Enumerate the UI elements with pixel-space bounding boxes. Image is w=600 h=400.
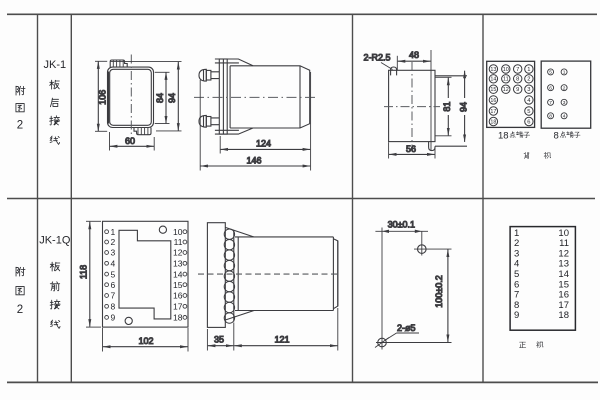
svg-text:1: 1 — [563, 70, 566, 76]
svg-text:35: 35 — [214, 334, 224, 344]
svg-text:11: 11 — [174, 237, 183, 247]
svg-text:9: 9 — [111, 313, 116, 323]
svg-text:15: 15 — [490, 87, 496, 93]
svg-text:2: 2 — [527, 77, 530, 83]
svg-text:9: 9 — [514, 310, 519, 321]
svg-text:48: 48 — [409, 50, 419, 60]
svg-text:11: 11 — [503, 77, 509, 83]
svg-text:14: 14 — [490, 77, 496, 83]
svg-text:56: 56 — [406, 144, 416, 154]
svg-text:2: 2 — [563, 85, 566, 91]
svg-text:94: 94 — [458, 102, 468, 112]
svg-text:2-R2.5: 2-R2.5 — [364, 53, 391, 63]
svg-text:1: 1 — [111, 227, 116, 237]
svg-text:3: 3 — [563, 100, 566, 106]
svg-text:JK-1Q: JK-1Q — [39, 235, 71, 247]
svg-text:121: 121 — [274, 334, 289, 344]
svg-text:12: 12 — [173, 248, 183, 258]
svg-text:124: 124 — [256, 139, 271, 149]
svg-text:146: 146 — [246, 156, 261, 166]
svg-text:7: 7 — [549, 100, 552, 106]
svg-text:JK-1: JK-1 — [43, 59, 66, 71]
svg-text:6: 6 — [549, 85, 552, 91]
svg-text:4: 4 — [111, 259, 116, 269]
svg-text:15: 15 — [173, 280, 183, 290]
svg-text:10: 10 — [173, 227, 183, 237]
svg-text:94: 94 — [167, 93, 177, 103]
svg-text:18: 18 — [558, 310, 569, 321]
svg-text:2: 2 — [17, 304, 23, 316]
svg-text:18: 18 — [498, 130, 509, 141]
svg-text:5: 5 — [527, 109, 530, 115]
svg-text:8: 8 — [554, 130, 559, 141]
svg-text:5: 5 — [549, 70, 552, 76]
svg-text:8: 8 — [516, 77, 519, 83]
svg-text:8: 8 — [549, 114, 552, 120]
svg-text:84: 84 — [155, 93, 165, 103]
svg-text:7: 7 — [516, 67, 519, 73]
svg-text:5: 5 — [111, 269, 116, 279]
svg-text:106: 106 — [97, 90, 107, 105]
svg-text:6: 6 — [111, 280, 116, 290]
svg-text:17: 17 — [173, 302, 183, 312]
svg-text:13: 13 — [173, 259, 183, 269]
svg-text:118: 118 — [78, 265, 88, 279]
svg-text:18: 18 — [173, 313, 183, 323]
svg-text:9: 9 — [516, 87, 519, 93]
svg-text:16: 16 — [173, 291, 183, 301]
svg-text:3: 3 — [111, 248, 116, 258]
svg-text:3: 3 — [527, 87, 530, 93]
svg-text:100±0.2: 100±0.2 — [434, 275, 444, 307]
svg-text:16: 16 — [490, 98, 496, 104]
svg-text:6: 6 — [527, 119, 530, 125]
svg-text:2: 2 — [17, 120, 23, 132]
svg-text:8: 8 — [111, 302, 116, 312]
svg-text:17: 17 — [490, 109, 496, 115]
svg-text:13: 13 — [490, 67, 496, 73]
svg-text:7: 7 — [111, 291, 116, 301]
svg-text:14: 14 — [173, 269, 183, 279]
svg-text:60: 60 — [125, 136, 135, 146]
svg-text:102: 102 — [138, 336, 153, 346]
svg-text:10: 10 — [503, 67, 509, 73]
svg-text:81: 81 — [442, 102, 452, 112]
svg-text:2-ø5: 2-ø5 — [397, 323, 416, 333]
svg-text:12: 12 — [503, 87, 509, 93]
svg-text:30±0.1: 30±0.1 — [388, 220, 415, 230]
svg-text:4: 4 — [563, 114, 566, 120]
svg-text:2: 2 — [111, 237, 116, 247]
svg-text:1: 1 — [527, 67, 530, 73]
svg-text:18: 18 — [490, 119, 496, 125]
